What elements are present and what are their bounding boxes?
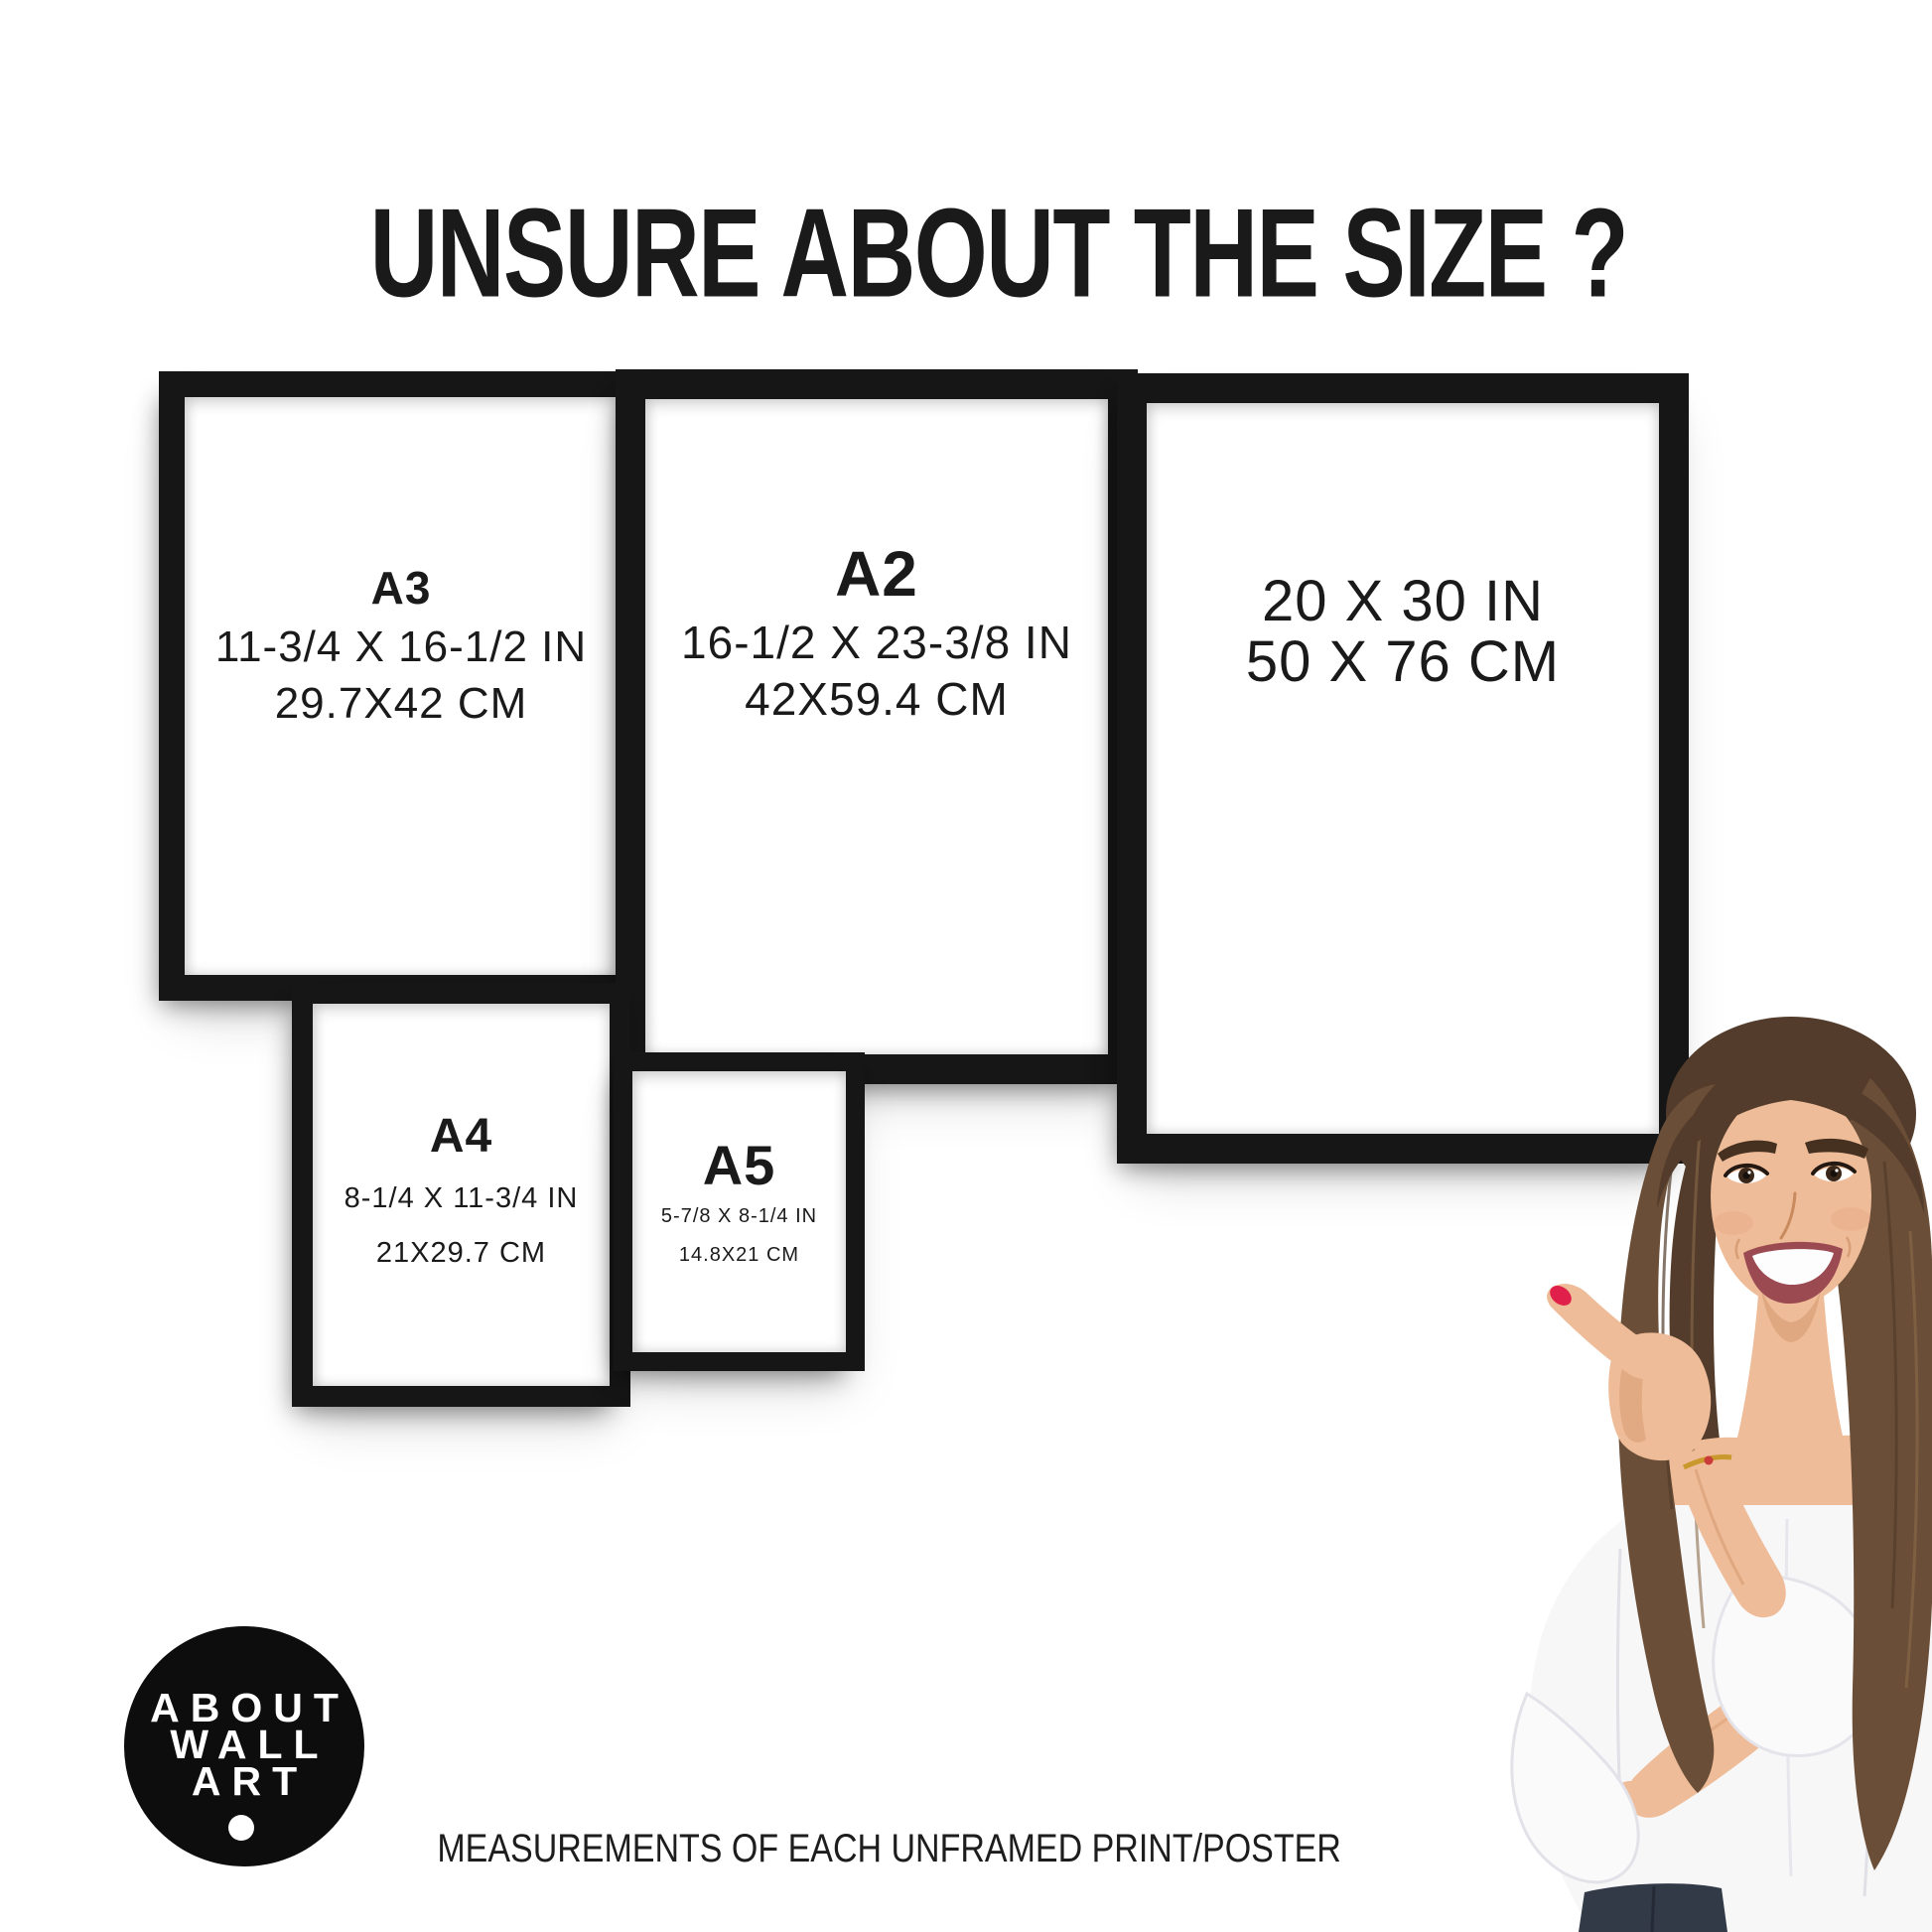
frame-a5-inches: 5-7/8 X 8-1/4 IN xyxy=(661,1197,817,1236)
frame-a4-cm: 21X29.7 CM xyxy=(345,1226,579,1281)
frame-a2-cm: 42X59.4 CM xyxy=(681,671,1072,728)
frame-a2-inches: 16-1/2 X 23-3/8 IN xyxy=(681,615,1072,671)
frame-a4-label: A4 xyxy=(345,1109,579,1164)
frame-a2-label: A2 xyxy=(681,537,1072,611)
frame-a3-label: A3 xyxy=(215,561,587,615)
woman-photo xyxy=(1271,993,1932,1932)
frame-a3-cm: 29.7X42 CM xyxy=(215,675,587,732)
frame-a5: A5 5-7/8 X 8-1/4 IN 14.8X21 CM xyxy=(614,1052,865,1371)
frame-20x30-text: 20 X 30 IN 50 X 76 CM xyxy=(1246,572,1560,693)
brand-logo-line3: ART xyxy=(192,1763,308,1800)
page-title: UNSURE ABOUT THE SIZE ? xyxy=(66,193,1932,314)
frame-a3-text: A3 11-3/4 X 16-1/2 IN 29.7X42 CM xyxy=(215,561,587,732)
blush-right xyxy=(1831,1207,1870,1231)
frame-a5-cm: 14.8X21 CM xyxy=(661,1236,817,1275)
bracelet-bead xyxy=(1705,1456,1714,1465)
jeans xyxy=(1579,1883,1727,1932)
frame-a3: A3 11-3/4 X 16-1/2 IN 29.7X42 CM xyxy=(159,371,643,1001)
footer-caption-text: MEASUREMENTS OF EACH UNFRAMED PRINT/POST… xyxy=(438,1827,1342,1871)
frame-a3-inches: 11-3/4 X 16-1/2 IN xyxy=(215,619,587,675)
frame-20x30-cm: 50 X 76 CM xyxy=(1246,632,1560,693)
blush-left xyxy=(1714,1211,1753,1235)
frame-a4: A4 8-1/4 X 11-3/4 IN 21X29.7 CM xyxy=(292,983,630,1407)
page-title-text: UNSURE ABOUT THE SIZE ? xyxy=(370,190,1627,316)
size-guide-infographic: UNSURE ABOUT THE SIZE ? A3 11-3/4 X 16-1… xyxy=(0,0,1932,1932)
frame-a2: A2 16-1/2 X 23-3/8 IN 42X59.4 CM xyxy=(616,369,1138,1084)
frame-a5-label: A5 xyxy=(661,1133,817,1197)
frame-a4-inches: 8-1/4 X 11-3/4 IN xyxy=(345,1172,579,1226)
frame-a2-text: A2 16-1/2 X 23-3/8 IN 42X59.4 CM xyxy=(681,537,1072,728)
frame-a4-text: A4 8-1/4 X 11-3/4 IN 21X29.7 CM xyxy=(345,1109,579,1281)
frame-20x30-inches: 20 X 30 IN xyxy=(1246,572,1560,632)
frame-a5-text: A5 5-7/8 X 8-1/4 IN 14.8X21 CM xyxy=(661,1133,817,1275)
